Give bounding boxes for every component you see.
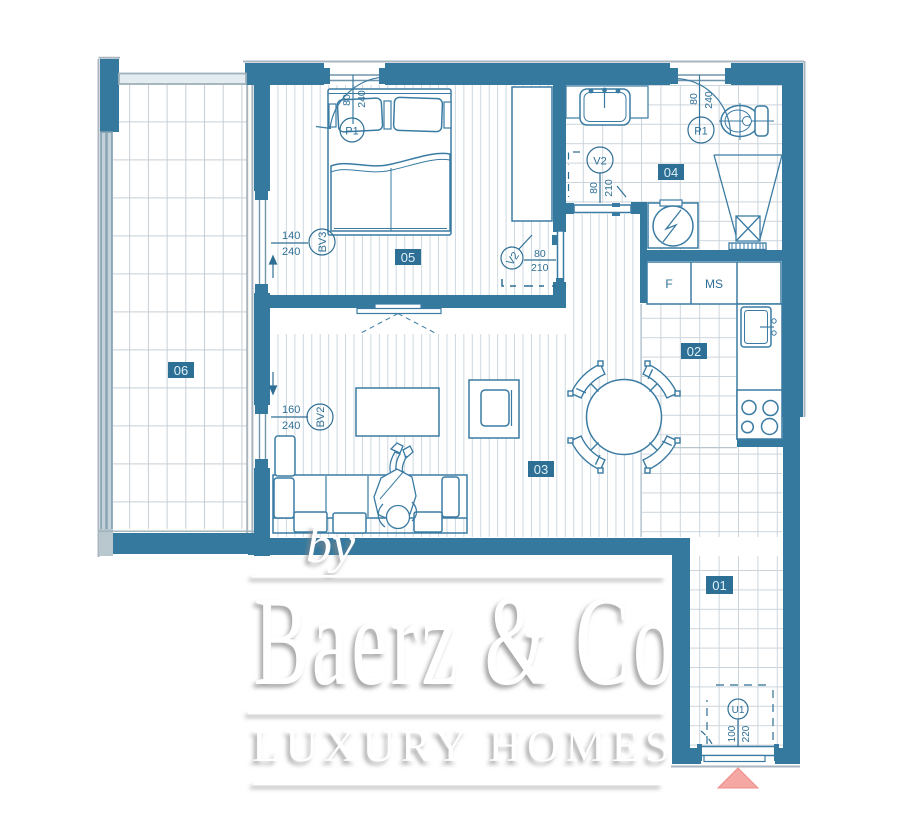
- svg-text:P1: P1: [694, 126, 707, 138]
- svg-text:01: 01: [712, 578, 726, 593]
- svg-text:240: 240: [282, 420, 300, 432]
- svg-text:U1: U1: [732, 705, 745, 716]
- svg-text:80: 80: [341, 94, 353, 106]
- svg-text:04: 04: [664, 165, 678, 180]
- svg-text:Baerz & Co: Baerz & Co: [254, 571, 677, 713]
- svg-text:240: 240: [282, 246, 300, 258]
- svg-text:160: 160: [282, 404, 300, 416]
- svg-text:BV3: BV3: [317, 232, 329, 253]
- svg-text:100: 100: [727, 725, 738, 742]
- svg-text:P1: P1: [345, 126, 358, 138]
- svg-text:210: 210: [603, 179, 615, 197]
- svg-text:210: 210: [531, 262, 549, 274]
- svg-text:06: 06: [174, 363, 188, 378]
- svg-text:MS: MS: [705, 277, 723, 291]
- svg-text:240: 240: [356, 90, 368, 108]
- svg-text:LUXURY HOMES: LUXURY HOMES: [252, 721, 676, 771]
- svg-text:by: by: [306, 517, 356, 574]
- svg-text:140: 140: [282, 230, 300, 242]
- svg-text:03: 03: [534, 462, 548, 477]
- svg-text:80: 80: [688, 93, 700, 105]
- svg-text:F: F: [665, 277, 672, 291]
- svg-text:02: 02: [687, 344, 701, 359]
- svg-text:80: 80: [534, 248, 546, 260]
- svg-text:240: 240: [703, 91, 715, 109]
- svg-text:80: 80: [588, 182, 600, 194]
- svg-text:V2: V2: [593, 156, 606, 168]
- svg-text:BV2: BV2: [315, 407, 327, 428]
- svg-text:220: 220: [741, 725, 752, 742]
- svg-text:05: 05: [401, 250, 415, 265]
